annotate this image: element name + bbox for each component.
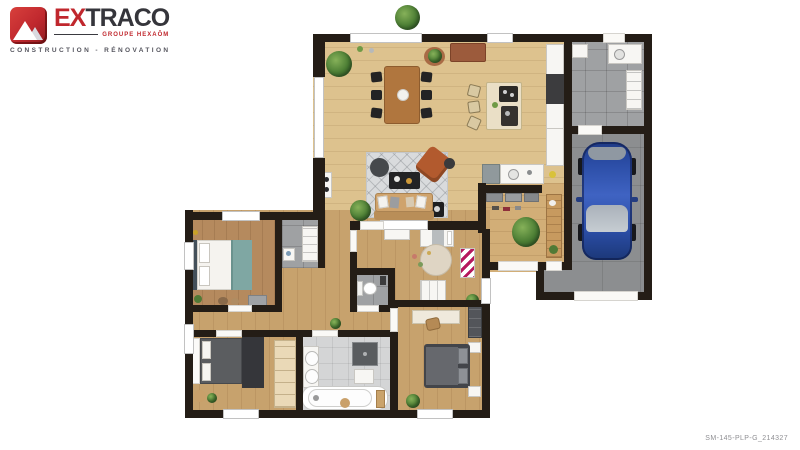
- master-bed-pillow: [199, 243, 210, 263]
- living-wall-west-upper: [313, 34, 325, 77]
- entry-plant: [512, 217, 540, 247]
- bay-window-north: [350, 33, 422, 43]
- floorplan-page: EXTRACO GROUPE HEXAÔM CONSTRUCTION - RÉN…: [0, 0, 800, 450]
- coat-rack-panel: [486, 193, 503, 202]
- door-bedroom3: [390, 308, 398, 332]
- bedroom3-duvet: [426, 347, 458, 385]
- island-sink: [501, 106, 518, 126]
- wall-child-bedroom3: [390, 300, 482, 307]
- master-bed-throw: [231, 240, 252, 290]
- sofa-pillow: [406, 197, 415, 208]
- toy: [418, 262, 423, 267]
- coat-rack-panel: [505, 193, 522, 202]
- dressing-wardrobe: [302, 226, 318, 262]
- window-bedroom3-east: [481, 278, 491, 304]
- living-south-plant: [350, 200, 371, 221]
- door-bathroom: [312, 330, 338, 337]
- terrace-plant: [395, 5, 420, 30]
- laundry-basket: [194, 390, 206, 402]
- stove-detail: [434, 206, 440, 212]
- coat-rack-panel: [524, 193, 539, 202]
- window-living-west: [314, 77, 324, 158]
- shoes: [492, 206, 499, 210]
- floor-bag: [218, 297, 228, 305]
- window-bedroom2-south: [223, 409, 259, 419]
- island-cooktop: [499, 86, 518, 102]
- bath-step-shelf: [376, 390, 385, 408]
- door-wc: [357, 305, 379, 312]
- kitchen-counter-dark-section: [546, 74, 564, 104]
- door-utility-garage: [578, 125, 602, 135]
- dresser-drawer: [286, 251, 291, 256]
- wall-living-entry: [478, 185, 542, 193]
- window-sill-pot: [357, 46, 363, 52]
- shoes: [503, 207, 510, 211]
- door-master: [228, 305, 252, 312]
- wall-bedroom2-bathroom: [296, 337, 303, 410]
- window-bedroom2-west: [184, 324, 194, 354]
- bedroom3-nightstand: [468, 386, 481, 397]
- floor-lamp: [444, 158, 455, 169]
- island-plant: [492, 102, 498, 108]
- window-living-south: [380, 220, 428, 230]
- utility-exterior-door: [603, 33, 625, 43]
- shower-drain: [363, 352, 367, 356]
- extraco-logo: EXTRACO GROUPE HEXAÔM CONSTRUCTION - RÉN…: [10, 7, 182, 54]
- master-bed-pillow: [199, 266, 210, 286]
- dining-chair: [370, 107, 382, 118]
- window-master-north: [222, 211, 260, 221]
- front-door: [498, 261, 538, 271]
- vanity-basin: [305, 351, 319, 366]
- toy: [427, 251, 431, 255]
- bedroom3-pillow: [458, 368, 468, 384]
- wall-master-east: [275, 218, 282, 312]
- sofa-pillow: [377, 195, 389, 208]
- exterior-wall-east: [644, 34, 652, 300]
- window-master-west: [184, 242, 194, 270]
- bathtub-faucet: [313, 395, 319, 401]
- child-shelf-colorful: [460, 248, 475, 278]
- utility-sink: [614, 49, 625, 60]
- wc-shelf: [380, 276, 386, 285]
- bedroom3-pillow: [458, 348, 468, 364]
- master-plant: [194, 295, 202, 303]
- door-childroom-north: [360, 221, 384, 230]
- cooktop-burner: [503, 90, 507, 94]
- kitchen-counter-south-cabinet: [482, 164, 500, 184]
- bedroom2-plant: [207, 393, 217, 403]
- side-table-plant: [428, 49, 442, 63]
- coffee-table-item: [394, 176, 400, 182]
- bench-plant: [549, 245, 558, 254]
- mountain-logo-icon: [10, 7, 47, 44]
- group-label: GROUPE HEXAÔM: [102, 32, 169, 38]
- brand-wordmark-ex: EX: [54, 4, 85, 32]
- counter-item: [527, 170, 532, 175]
- toy: [412, 254, 417, 259]
- window-sill-pot: [369, 48, 374, 53]
- window-kitchen-north: [487, 33, 513, 43]
- group-divider-line: [54, 34, 98, 35]
- car-mirror: [631, 197, 638, 202]
- brand-tagline: CONSTRUCTION - RÉNOVATION: [10, 47, 182, 54]
- dining-chair: [420, 107, 432, 118]
- bedroom2-pillow: [202, 341, 211, 359]
- cooktop-burner: [510, 93, 514, 97]
- brand-wordmark-traco: TRACO: [85, 4, 169, 32]
- bedroom3-plant: [406, 394, 420, 408]
- bedroom2-wardrobe: [274, 340, 296, 408]
- kitchen-counter-south: [500, 164, 544, 184]
- bedroom2-pillow: [202, 363, 211, 381]
- wall-dressing-east: [318, 218, 325, 268]
- vanity-basin: [305, 369, 319, 384]
- sink-faucet: [505, 111, 510, 116]
- bath-basket: [340, 398, 350, 408]
- plan-reference-number: SM-145-PLP-G_214327: [705, 435, 788, 442]
- door-bedroom2: [216, 330, 242, 337]
- car-rear-window: [588, 147, 626, 160]
- living-corner-plant: [326, 51, 352, 77]
- utility-cabinet: [572, 44, 588, 58]
- dining-chair: [371, 90, 382, 100]
- pouf: [370, 158, 389, 177]
- sideboard: [450, 43, 486, 62]
- window-bedroom3-south: [417, 409, 453, 419]
- dining-chair: [421, 90, 432, 100]
- bar-stool: [467, 100, 481, 114]
- toilet-bowl: [363, 282, 377, 295]
- bench-item: [549, 200, 556, 206]
- shoes: [515, 206, 521, 210]
- table-centerpiece: [397, 89, 409, 101]
- wing-wall-east: [482, 229, 490, 418]
- bedroom2-rug: [242, 334, 264, 388]
- living-wall-west-lower: [313, 158, 325, 220]
- dining-chair: [421, 71, 433, 82]
- sofa-pillow: [389, 197, 399, 209]
- child-round-rug: [420, 244, 452, 276]
- door-entry-garage: [546, 261, 562, 271]
- floor-bag: [231, 298, 239, 305]
- wall-lamp: [193, 230, 198, 235]
- sofa-pillow: [415, 195, 427, 208]
- car-windshield: [586, 205, 628, 232]
- wall-living-garage: [564, 34, 572, 270]
- car-mirror: [576, 197, 583, 202]
- dining-chair: [371, 71, 383, 82]
- kitchen-sink: [508, 169, 519, 180]
- child-bed-pillow: [447, 231, 452, 245]
- bathroom-cabinet: [354, 369, 374, 384]
- mountain-peak-big-icon: [13, 21, 37, 40]
- garage-door: [574, 291, 638, 301]
- flower-vase: [549, 171, 556, 178]
- brand-wordmark: EXTRACO: [54, 7, 169, 31]
- coffee-table-item: [406, 178, 412, 184]
- corridor-plant: [330, 318, 341, 329]
- kitchen-tall-cabinet: [546, 128, 564, 166]
- door-childroom-west: [350, 230, 357, 252]
- child-toy-chest: [420, 280, 446, 302]
- washing-machine-column: [626, 70, 642, 110]
